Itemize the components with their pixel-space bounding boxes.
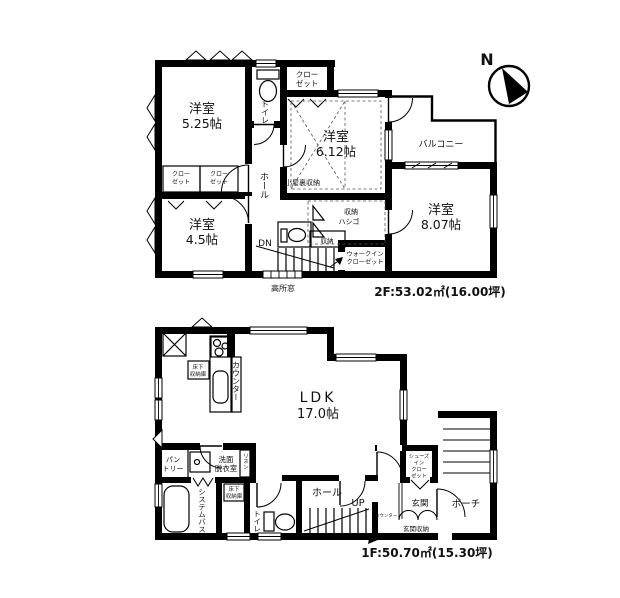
- stairs-up-label: UP: [351, 498, 364, 509]
- shoes-in-closet-label: ゼット: [411, 472, 427, 480]
- toilet-2f-label: トイレ: [261, 100, 270, 124]
- stairs-2f: [256, 246, 334, 271]
- ladder-icon: [313, 206, 324, 237]
- closet-a-label: ゼット: [172, 178, 190, 186]
- closet-a-label: クロー: [172, 171, 190, 178]
- room-45-size: 4.5帖: [186, 232, 218, 247]
- floor-plan-drawing: 洋室 5.25帖 トイレ クロー ゼット 洋室 6.12帖 バルコニー 洋室 8…: [0, 0, 620, 598]
- balcony-railing: [392, 97, 496, 163]
- compass-north-label: N: [480, 50, 493, 69]
- exterior-steps: [443, 429, 490, 473]
- casement-window-icon: [186, 51, 206, 60]
- ladder-storage-label: 収納: [344, 207, 358, 216]
- closet-door-chevron: [288, 99, 304, 107]
- shoes-in-closet-label: イン: [414, 461, 424, 467]
- closet-b-label: クロー: [210, 171, 228, 178]
- sink-icon: [213, 371, 228, 403]
- closet-door-chevron: [206, 201, 222, 209]
- shoes-in-closet-label: クロー: [411, 466, 427, 473]
- closet-door-chevron: [310, 99, 326, 107]
- shoes-in-closet-label: シューズ: [409, 452, 430, 460]
- bathtub-icon: [164, 486, 189, 532]
- casement-window-icon: [210, 51, 230, 60]
- closet-top-label: クロー: [296, 70, 319, 79]
- counter-label: カウンター: [232, 361, 241, 401]
- compass: N: [480, 50, 529, 106]
- walk-in-closet-label: ウォークイン: [346, 250, 383, 258]
- room-45-name: 洋室: [189, 217, 215, 233]
- ldk-name: LDK: [300, 390, 337, 406]
- storage-label: 収納: [321, 236, 334, 245]
- kitchen-floor-storage-label: 床下: [192, 363, 204, 371]
- entrance-storage-label: 玄関収納: [403, 524, 429, 533]
- hall-1f-label: ホール: [312, 487, 342, 499]
- walk-in-closet-label: クローゼット: [346, 258, 383, 266]
- ladder-storage-label: ハシゴ: [339, 217, 360, 226]
- washroom-label: 洗面: [219, 454, 234, 464]
- porch-label: ポーチ: [452, 499, 481, 510]
- room-612-name: 洋室: [323, 129, 349, 145]
- closet-top-label: ゼット: [296, 78, 319, 88]
- pantry-label: トリー: [163, 465, 184, 473]
- room-525-name: 洋室: [189, 101, 215, 117]
- room-525-size: 5.25帖: [182, 116, 222, 131]
- floor-storage-label: 床下: [228, 485, 240, 493]
- washroom-label: 脱衣室: [215, 463, 238, 473]
- entrance-step-line: [399, 483, 402, 519]
- casement-window-icon: [147, 95, 155, 121]
- linen-label: リネン: [242, 453, 249, 470]
- casement-window-icon: [232, 51, 252, 60]
- floor-1f: LDK 17.0帖 カウンター 床下 収納庫 パン トリー 洗面 脱衣室 リネン…: [153, 318, 497, 560]
- balcony-label: バルコニー: [419, 139, 464, 150]
- floor-plan-page: 洋室 5.25帖 トイレ クロー ゼット 洋室 6.12帖 バルコニー 洋室 8…: [0, 0, 620, 598]
- toilet-icon: [257, 70, 279, 102]
- floor-2f: 洋室 5.25帖 トイレ クロー ゼット 洋室 6.12帖 バルコニー 洋室 8…: [147, 51, 506, 299]
- closet-b-label: ゼット: [210, 178, 228, 186]
- pantry-label: パン: [166, 456, 180, 464]
- casement-window-icon: [147, 227, 155, 253]
- entrance-label: 玄関: [411, 498, 428, 509]
- double-door-icon: [399, 511, 437, 521]
- closet-door-chevron: [168, 201, 184, 209]
- ldk-size: 17.0帖: [297, 407, 339, 422]
- system-bath-label: システムバス: [197, 488, 206, 533]
- high-window-label: 高所窓: [271, 283, 295, 293]
- room-807-size: 8.07帖: [421, 217, 461, 232]
- casement-window-icon: [147, 124, 155, 150]
- casement-window-icon: [192, 318, 212, 327]
- floor-storage-label: 収納庫: [226, 492, 243, 500]
- entrance-counter-label: カウンター: [375, 512, 398, 519]
- toilet-1f-label: トイレ: [253, 510, 262, 533]
- room-807-name: 洋室: [428, 202, 454, 218]
- room-612-size: 6.12帖: [316, 144, 356, 159]
- attic-storage-label: 小屋裏収納: [285, 178, 320, 187]
- toilet-icon: [264, 512, 295, 531]
- casement-window-icon: [147, 198, 155, 224]
- stairs-down-label: DN: [258, 239, 272, 249]
- kitchen-floor-storage-label: 収納庫: [190, 370, 207, 378]
- hall-2f-label: ホール: [258, 172, 269, 199]
- area-1f-label: 1F:50.70㎡(15.30坪): [361, 545, 493, 560]
- washbasin-icon: [281, 229, 306, 243]
- area-2f-label: 2F:53.02㎡(16.00坪): [374, 284, 506, 299]
